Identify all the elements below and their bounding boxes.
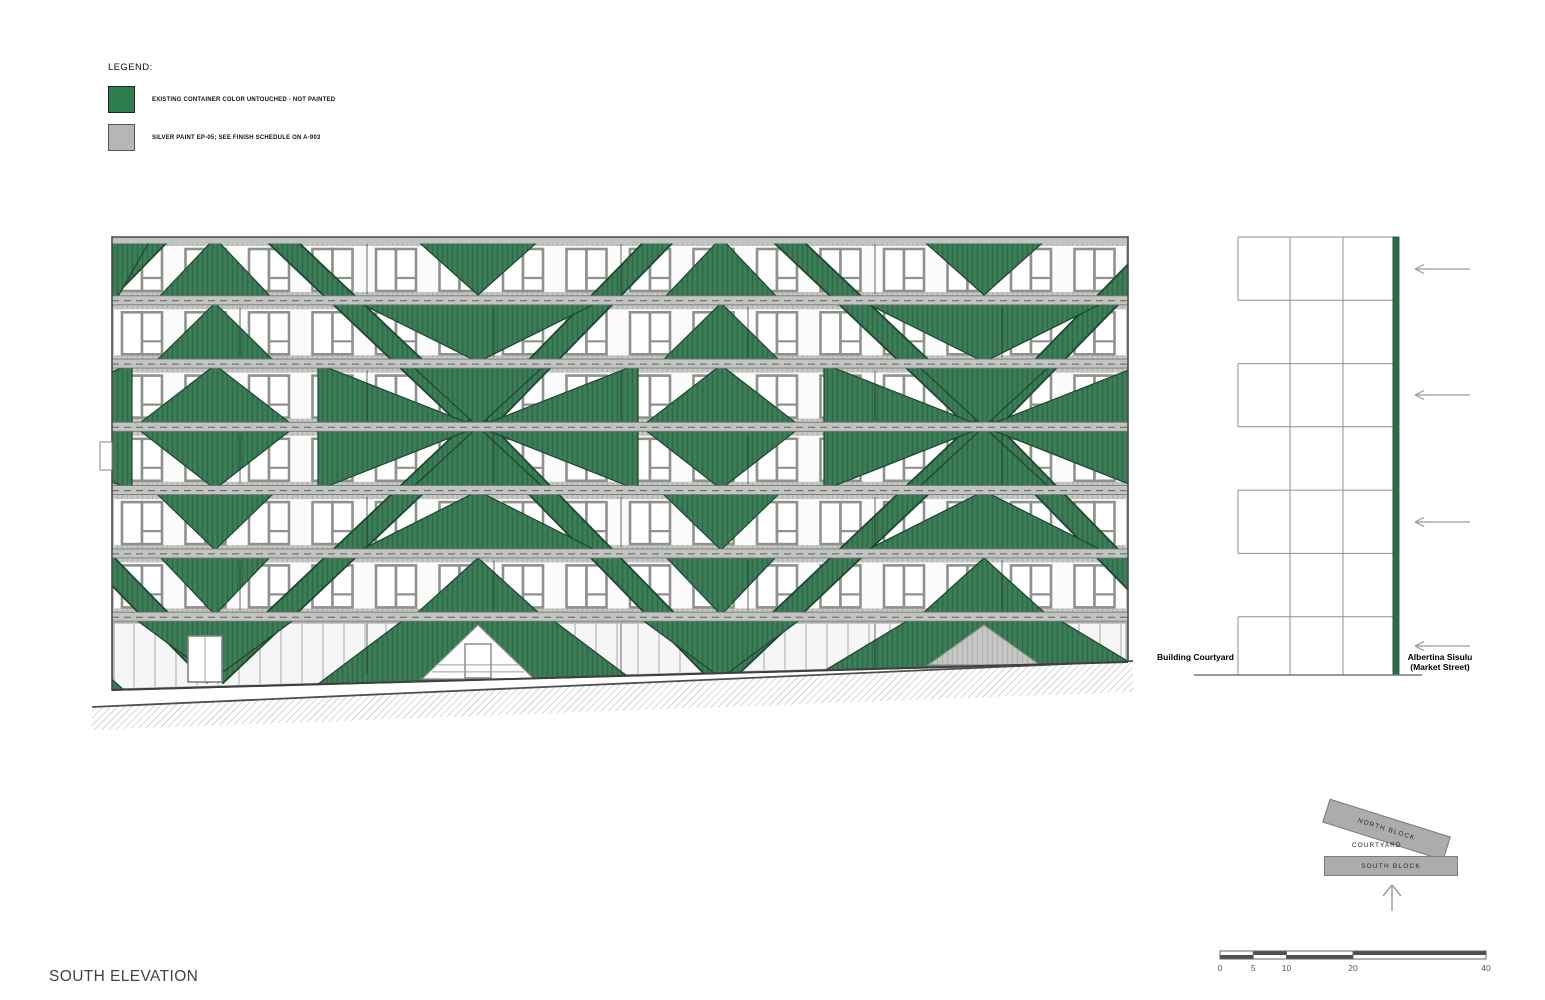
scale-label-10: 10 <box>1282 963 1292 973</box>
scale-label-0: 0 <box>1218 963 1223 973</box>
facade-elevation <box>90 232 1135 742</box>
courtyard-label: COURTYARD <box>1352 842 1402 849</box>
section-grid <box>1180 232 1500 692</box>
label-market-street-line1: Albertina Sisulu <box>1399 652 1481 662</box>
elevation-drawing <box>90 232 1135 747</box>
north-arrow-icon <box>1378 880 1406 914</box>
legend-title: LEGEND: <box>108 62 335 73</box>
legend-row-silver: SILVER PAINT EP-05; SEE FINISH SCHEDULE … <box>108 124 335 151</box>
legend: LEGEND: EXISTING CONTAINER COLOR UNTOUCH… <box>108 62 335 162</box>
north-block-bar: NORTH BLOCK <box>1322 799 1451 861</box>
graphic-scale: 05102040 <box>1213 944 1503 980</box>
legend-row-green: EXISTING CONTAINER COLOR UNTOUCHED - NOT… <box>108 86 335 113</box>
label-building-courtyard: Building Courtyard <box>1148 652 1234 662</box>
scale-bar: 05102040 <box>1213 944 1503 985</box>
legend-swatch-green <box>108 86 135 113</box>
legend-label-silver: SILVER PAINT EP-05; SEE FINISH SCHEDULE … <box>152 135 321 141</box>
key-plan: NORTH BLOCK COURTYARD SOUTH BLOCK <box>1316 786 1496 926</box>
legend-swatch-silver <box>108 124 135 151</box>
sheet-title: SOUTH ELEVATION <box>49 968 198 986</box>
scale-label-20: 20 <box>1348 963 1358 973</box>
south-block-bar: SOUTH BLOCK <box>1324 856 1458 876</box>
facade-pattern <box>90 232 1135 702</box>
label-market-street: Albertina Sisulu (Market Street) <box>1399 652 1481 672</box>
label-market-street-line2: (Market Street) <box>1399 662 1481 672</box>
scale-label-40: 40 <box>1481 963 1491 973</box>
drawing-sheet: LEGEND: EXISTING CONTAINER COLOR UNTOUCH… <box>0 0 1545 1000</box>
legend-label-green: EXISTING CONTAINER COLOR UNTOUCHED - NOT… <box>152 97 335 103</box>
scale-label-5: 5 <box>1251 963 1256 973</box>
section-diagram <box>1180 232 1500 697</box>
